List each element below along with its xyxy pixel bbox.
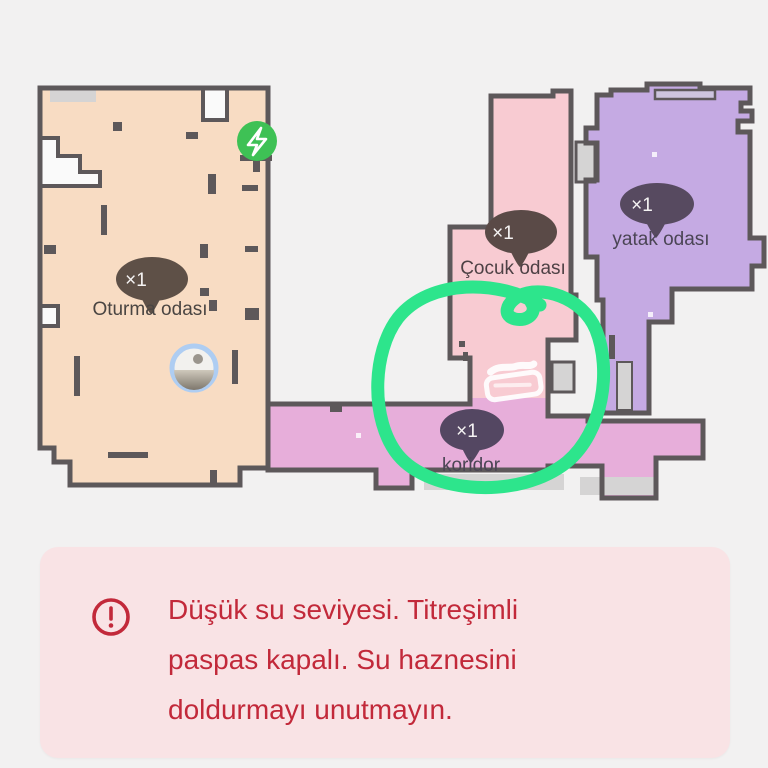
alert-message: Düşük su seviyesi. Titreşimli paspas kap… [168, 585, 708, 735]
alert-text-line-3: doldurmayı unutmayın. [168, 685, 708, 735]
room-label-yatak: yatak odası [612, 229, 709, 250]
room-label-oturma: Oturma odası [92, 299, 207, 320]
floor-map[interactable]: ×1 Oturma odası ×1 Çocuk odası ×1 yatak … [0, 0, 768, 545]
charger-dock-icon[interactable] [237, 121, 277, 161]
alert-text-line-2: paspas kapalı. Su haznesini [168, 635, 708, 685]
room-count-cocuk: ×1 [492, 223, 514, 244]
warning-icon [89, 595, 133, 639]
room-label-cocuk: Çocuk odası [460, 258, 566, 279]
alert-text-line-1: Düşük su seviyesi. Titreşimli [168, 585, 708, 635]
robot-vacuum-icon[interactable] [172, 346, 216, 390]
room-count-oturma: ×1 [125, 270, 147, 291]
door-slot [655, 90, 715, 99]
room-count-koridor: ×1 [456, 421, 478, 442]
room-count-yatak: ×1 [631, 195, 653, 216]
room-label-koridor: koridor [442, 455, 501, 476]
